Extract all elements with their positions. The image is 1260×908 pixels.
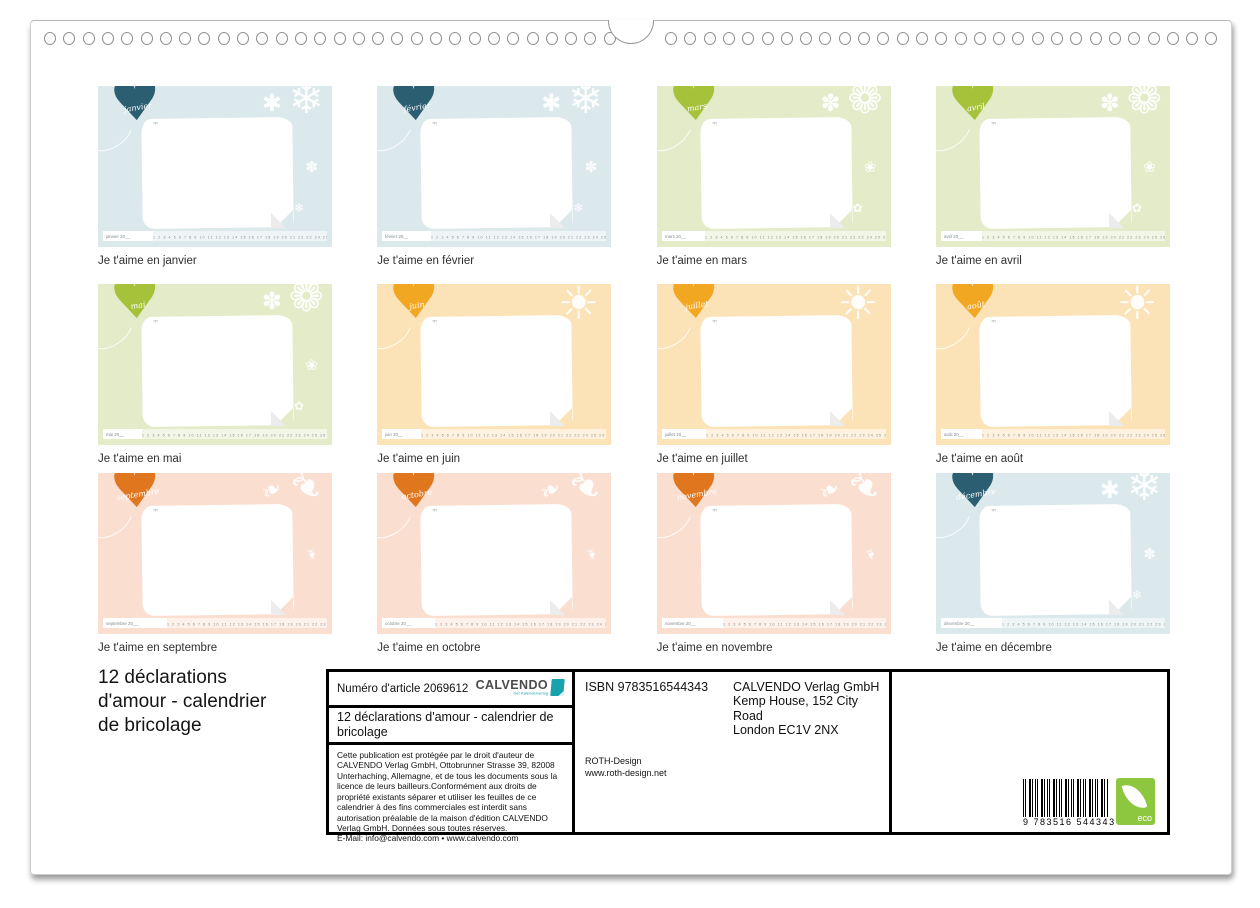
month-caption: Je t'aime en septembre bbox=[98, 642, 332, 654]
month-caption: Je t'aime en avril bbox=[936, 255, 1170, 267]
binding-ring bbox=[102, 32, 114, 45]
quote-icon: ”” bbox=[712, 121, 715, 132]
copyright-block: Cette publication est protégée par le dr… bbox=[329, 745, 572, 849]
calendar-back-page: ❄ ✱ ✽ ❄ ♥ janvier ”” janvier 20__ 1 2 3 … bbox=[30, 20, 1232, 875]
binding-ring bbox=[1012, 32, 1024, 45]
quote-icon: ”” bbox=[991, 319, 994, 330]
binding-ring bbox=[449, 32, 461, 45]
snowflake-icon: ❄ bbox=[1132, 589, 1142, 601]
date-strip: mars 20__ 1 2 3 4 5 6 7 8 9 10 11 12 13 … bbox=[662, 231, 886, 241]
binding-ring bbox=[800, 32, 812, 45]
brand-tagline: Der Kalenderverlag bbox=[514, 691, 548, 696]
flower-icon: ✿ bbox=[294, 400, 304, 412]
leaf-icon: ❧ bbox=[816, 476, 845, 507]
binding-ring bbox=[565, 32, 577, 45]
binding-ring bbox=[372, 32, 384, 45]
info-table-middle-column: ISBN 9783516544343 CALVENDO Verlag GmbH … bbox=[575, 672, 892, 832]
snowflake-icon: ❄ bbox=[1127, 473, 1162, 507]
date-strip-days: 1 2 3 4 5 6 7 8 9 10 11 12 13 14 15 16 1… bbox=[142, 429, 327, 439]
snowflake-icon: ✽ bbox=[305, 160, 318, 175]
bubble-fold bbox=[271, 411, 286, 426]
date-strip: décembre 20__ 1 2 3 4 5 6 7 8 9 10 11 12… bbox=[941, 618, 1165, 628]
publisher-line: London EC1V 2NX bbox=[733, 723, 889, 737]
binding-ring bbox=[179, 32, 191, 45]
month-preview: ❄ ✱ ✽ ❄ ♥ février ”” février 20__ 1 2 3 … bbox=[377, 86, 611, 247]
month-card: ❁ ✽ ❀ ✿ ♥ mars ”” mars 20__ 1 2 3 4 5 6 … bbox=[657, 86, 891, 267]
binding-ring bbox=[527, 32, 539, 45]
binding-ring bbox=[877, 32, 889, 45]
designer-line: ROTH-Design bbox=[585, 756, 667, 768]
product-title: 12 déclarations d'amour - calendrier de … bbox=[329, 708, 572, 745]
bubble-fold bbox=[550, 411, 565, 426]
calvendo-logo-text: CALVENDO Der Kalenderverlag bbox=[476, 678, 548, 700]
info-table-left-column: Numéro d'article 2069612 CALVENDO Der Ka… bbox=[329, 672, 575, 832]
flower-icon: ✽ bbox=[820, 92, 840, 116]
month-caption: Je t'aime en novembre bbox=[657, 642, 891, 654]
month-card: ❧ ❧ ❧ ♥ novembre ”” novembre 20__ 1 2 3 … bbox=[657, 473, 891, 654]
month-preview: ☀ ♥ juin ”” juin 20__ 1 2 3 4 5 6 7 8 9 … bbox=[377, 284, 611, 445]
flower-icon: ✽ bbox=[1100, 92, 1120, 116]
bubble-fold bbox=[830, 600, 845, 615]
month-caption: Je t'aime en octobre bbox=[377, 642, 611, 654]
binding-ring bbox=[469, 32, 481, 45]
month-card: ☀ ♥ juin ”” juin 20__ 1 2 3 4 5 6 7 8 9 … bbox=[377, 284, 611, 465]
month-card: ❄ ✱ ✽ ❄ ♥ décembre ”” décembre 20__ 1 2 … bbox=[936, 473, 1170, 654]
binding-ring bbox=[83, 32, 95, 45]
bubble-fold bbox=[1109, 411, 1124, 426]
calendar-title-line: de bricolage bbox=[98, 714, 266, 738]
info-table-right-column: 9 783516 544343 eco bbox=[892, 672, 1167, 832]
barcode: 9 783516 544343 bbox=[1023, 779, 1109, 827]
binding-ring bbox=[391, 32, 403, 45]
date-strip: février 20__ 1 2 3 4 5 6 7 8 9 10 11 12 … bbox=[382, 231, 606, 241]
binding-ring bbox=[897, 32, 909, 45]
copyright-text: Cette publication est protégée par le dr… bbox=[337, 750, 557, 833]
bubble-fold bbox=[271, 600, 286, 615]
binding-ring bbox=[430, 32, 442, 45]
date-strip: janvier 20__ 1 2 3 4 5 6 7 8 9 10 11 12 … bbox=[103, 231, 327, 241]
eco-leaf-icon bbox=[1122, 781, 1148, 812]
date-strip: novembre 20__ 1 2 3 4 5 6 7 8 9 10 11 12… bbox=[662, 618, 886, 628]
month-preview: ❧ ❧ ❧ ♥ octobre ”” octobre 20__ 1 2 3 4 … bbox=[377, 473, 611, 634]
binding-ring bbox=[218, 32, 230, 45]
binding-ring bbox=[781, 32, 793, 45]
month-caption: Je t'aime en juin bbox=[377, 453, 611, 465]
date-strip-label: juillet 20__ bbox=[662, 429, 706, 439]
article-number: Numéro d'article 2069612 bbox=[337, 683, 468, 695]
date-strip-label: décembre 20__ bbox=[941, 618, 1003, 628]
binding-ring bbox=[1032, 32, 1044, 45]
date-strip-label: mars 20__ bbox=[662, 231, 706, 241]
flower-icon: ✿ bbox=[1132, 202, 1142, 214]
date-strip: octobre 20__ 1 2 3 4 5 6 7 8 9 10 11 12 … bbox=[382, 618, 606, 628]
bubble-fold bbox=[1109, 213, 1124, 228]
article-row: Numéro d'article 2069612 CALVENDO Der Ka… bbox=[329, 672, 572, 708]
month-card: ❁ ✽ ❀ ✿ ♥ mai ”” mai 20__ 1 2 3 4 5 6 7 … bbox=[98, 284, 332, 465]
quote-icon: ”” bbox=[712, 508, 715, 519]
date-strip-label: juin 20__ bbox=[382, 429, 420, 439]
leaf-icon: ❧ bbox=[581, 545, 600, 563]
date-strip-days: 1 2 3 4 5 6 7 8 9 10 11 12 13 14 15 16 1… bbox=[982, 231, 1165, 241]
date-strip-label: février 20__ bbox=[382, 231, 430, 241]
binding-ring bbox=[507, 32, 519, 45]
bubble-fold bbox=[830, 213, 845, 228]
month-preview: ❧ ❧ ❧ ♥ novembre ”” novembre 20__ 1 2 3 … bbox=[657, 473, 891, 634]
month-caption: Je t'aime en décembre bbox=[936, 642, 1170, 654]
date-strip-label: août 20__ bbox=[941, 429, 983, 439]
month-caption: Je t'aime en mai bbox=[98, 453, 332, 465]
month-card: ❄ ✱ ✽ ❄ ♥ février ”” février 20__ 1 2 3 … bbox=[377, 86, 611, 267]
month-card: ☀ ♥ juillet ”” juillet 20__ 1 2 3 4 5 6 … bbox=[657, 284, 891, 465]
binding-ring bbox=[546, 32, 558, 45]
binding-ring bbox=[704, 32, 716, 45]
flower-icon: ❁ bbox=[1127, 86, 1162, 120]
binding-ring bbox=[237, 32, 249, 45]
calvendo-logo: CALVENDO Der Kalenderverlag bbox=[476, 678, 564, 700]
bubble-fold bbox=[1109, 600, 1124, 615]
calendar-title-line: d'amour - calendrier bbox=[98, 690, 266, 714]
binding-ring bbox=[1051, 32, 1063, 45]
barcode-number: 9 783516 544343 bbox=[1023, 817, 1109, 827]
bubble-fold bbox=[830, 411, 845, 426]
date-strip-days: 1 2 3 4 5 6 7 8 9 10 11 12 13 14 15 16 1… bbox=[431, 231, 607, 241]
date-strip-days: 1 2 3 4 5 6 7 8 9 10 11 12 13 14 15 16 1… bbox=[167, 618, 327, 628]
date-strip-days: 1 2 3 4 5 6 7 8 9 10 11 12 13 14 15 16 1… bbox=[723, 618, 885, 628]
date-strip: juillet 20__ 1 2 3 4 5 6 7 8 9 10 11 12 … bbox=[662, 429, 886, 439]
snowflake-icon: ✽ bbox=[585, 160, 598, 175]
quote-icon: ”” bbox=[153, 508, 156, 519]
month-card: ☀ ♥ août ”” août 20__ 1 2 3 4 5 6 7 8 9 … bbox=[936, 284, 1170, 465]
snowflake-icon: ✽ bbox=[1143, 547, 1156, 562]
binding-ring bbox=[198, 32, 210, 45]
binding-ring bbox=[353, 32, 365, 45]
eco-label: eco bbox=[1137, 813, 1152, 823]
snowflake-icon: ✱ bbox=[541, 92, 561, 116]
binding-ring bbox=[584, 32, 596, 45]
binding-ring bbox=[488, 32, 500, 45]
leaf-icon: ❧ bbox=[861, 545, 880, 563]
snowflake-icon: ✱ bbox=[1100, 479, 1120, 503]
month-preview: ☀ ♥ juillet ”” juillet 20__ 1 2 3 4 5 6 … bbox=[657, 284, 891, 445]
flower-icon: ❀ bbox=[1143, 160, 1156, 175]
binding-ring bbox=[63, 32, 75, 45]
flower-icon: ❁ bbox=[847, 86, 882, 120]
date-strip-label: septembre 20__ bbox=[103, 618, 167, 628]
binding-ring bbox=[916, 32, 928, 45]
snowflake-icon: ✱ bbox=[262, 92, 282, 116]
binding-ring bbox=[411, 32, 423, 45]
binding-ring bbox=[44, 32, 56, 45]
binding-ring bbox=[1128, 32, 1140, 45]
brand-flag-icon bbox=[550, 679, 564, 696]
flower-icon: ✿ bbox=[853, 202, 863, 214]
quote-icon: ”” bbox=[991, 121, 994, 132]
date-strip-label: janvier 20__ bbox=[103, 231, 153, 241]
bubble-fold bbox=[550, 600, 565, 615]
binding-ring bbox=[819, 32, 831, 45]
publisher-address: CALVENDO Verlag GmbH Kemp House, 152 Cit… bbox=[733, 680, 889, 737]
binding-ring bbox=[955, 32, 967, 45]
date-strip: mai 20__ 1 2 3 4 5 6 7 8 9 10 11 12 13 1… bbox=[103, 429, 327, 439]
leaf-icon: ❧ bbox=[302, 545, 321, 563]
month-card: ❧ ❧ ❧ ♥ septembre ”” septembre 20__ 1 2 … bbox=[98, 473, 332, 654]
designer-line: www.roth-design.net bbox=[585, 768, 667, 780]
binding-ring bbox=[762, 32, 774, 45]
bubble-fold bbox=[550, 213, 565, 228]
binding-ring bbox=[1070, 32, 1082, 45]
binding-ring bbox=[256, 32, 268, 45]
month-caption: Je t'aime en juillet bbox=[657, 453, 891, 465]
bubble-fold bbox=[271, 213, 286, 228]
leaf-icon: ❧ bbox=[537, 476, 566, 507]
snowflake-icon: ❄ bbox=[568, 86, 603, 120]
quote-icon: ”” bbox=[433, 121, 436, 132]
binding-ring bbox=[935, 32, 947, 45]
binding-ring bbox=[314, 32, 326, 45]
date-strip: septembre 20__ 1 2 3 4 5 6 7 8 9 10 11 1… bbox=[103, 618, 327, 628]
flower-icon: ✽ bbox=[262, 290, 282, 314]
barcode-bars bbox=[1023, 779, 1109, 817]
binding-ring bbox=[1186, 32, 1198, 45]
leaf-icon: ❧ bbox=[257, 476, 286, 507]
month-card: ❄ ✱ ✽ ❄ ♥ janvier ”” janvier 20__ 1 2 3 … bbox=[98, 86, 332, 267]
date-strip: juin 20__ 1 2 3 4 5 6 7 8 9 10 11 12 13 … bbox=[382, 429, 606, 439]
month-caption: Je t'aime en août bbox=[936, 453, 1170, 465]
month-preview: ❄ ✱ ✽ ❄ ♥ décembre ”” décembre 20__ 1 2 … bbox=[936, 473, 1170, 634]
binding-ring bbox=[839, 32, 851, 45]
date-strip-days: 1 2 3 4 5 6 7 8 9 10 11 12 13 14 15 16 1… bbox=[153, 231, 327, 241]
flower-icon: ❀ bbox=[864, 160, 877, 175]
binding-ring bbox=[1148, 32, 1160, 45]
flower-icon: ❀ bbox=[305, 358, 318, 373]
binding-ring bbox=[121, 32, 133, 45]
eco-logo: eco bbox=[1116, 778, 1155, 825]
month-preview: ❁ ✽ ❀ ✿ ♥ mai ”” mai 20__ 1 2 3 4 5 6 7 … bbox=[98, 284, 332, 445]
date-strip-days: 1 2 3 4 5 6 7 8 9 10 11 12 13 14 15 16 1… bbox=[706, 429, 886, 439]
binding-ring bbox=[1090, 32, 1102, 45]
brand-name: CALVENDO bbox=[476, 678, 548, 692]
quote-icon: ”” bbox=[712, 319, 715, 330]
month-caption: Je t'aime en février bbox=[377, 255, 611, 267]
binding-ring bbox=[993, 32, 1005, 45]
date-strip-label: octobre 20__ bbox=[382, 618, 435, 628]
binding-ring bbox=[723, 32, 735, 45]
month-preview: ❁ ✽ ❀ ✿ ♥ avril ”” avril 20__ 1 2 3 4 5 … bbox=[936, 86, 1170, 247]
month-preview: ❧ ❧ ❧ ♥ septembre ”” septembre 20__ 1 2 … bbox=[98, 473, 332, 634]
binding-ring bbox=[742, 32, 754, 45]
date-strip-label: mai 20__ bbox=[103, 429, 142, 439]
date-strip: avril 20__ 1 2 3 4 5 6 7 8 9 10 11 12 13… bbox=[941, 231, 1165, 241]
binding-ring bbox=[160, 32, 172, 45]
month-card: ❧ ❧ ❧ ♥ octobre ”” octobre 20__ 1 2 3 4 … bbox=[377, 473, 611, 654]
month-preview: ❄ ✱ ✽ ❄ ♥ janvier ”” janvier 20__ 1 2 3 … bbox=[98, 86, 332, 247]
month-preview: ☀ ♥ août ”” août 20__ 1 2 3 4 5 6 7 8 9 … bbox=[936, 284, 1170, 445]
binding-ring bbox=[276, 32, 288, 45]
quote-icon: ”” bbox=[153, 121, 156, 132]
date-strip-days: 1 2 3 4 5 6 7 8 9 10 11 12 13 14 15 16 1… bbox=[982, 429, 1164, 439]
publisher-line: Kemp House, 152 City Road bbox=[733, 694, 889, 723]
binding-ring bbox=[1167, 32, 1179, 45]
publisher-line: CALVENDO Verlag GmbH bbox=[733, 680, 889, 694]
date-strip-label: novembre 20__ bbox=[662, 618, 724, 628]
quote-icon: ”” bbox=[433, 508, 436, 519]
binding-ring bbox=[684, 32, 696, 45]
date-strip: août 20__ 1 2 3 4 5 6 7 8 9 10 11 12 13 … bbox=[941, 429, 1165, 439]
calendar-title: 12 déclarations d'amour - calendrier de … bbox=[98, 666, 266, 738]
date-strip-days: 1 2 3 4 5 6 7 8 9 10 11 12 13 14 15 16 1… bbox=[421, 429, 607, 439]
date-strip-label: avril 20__ bbox=[941, 231, 982, 241]
binding-ring bbox=[295, 32, 307, 45]
calendar-title-line: 12 déclarations bbox=[98, 666, 266, 690]
quote-icon: ”” bbox=[433, 319, 436, 330]
date-strip-days: 1 2 3 4 5 6 7 8 9 10 11 12 13 14 15 16 1… bbox=[1002, 618, 1164, 628]
binding-ring bbox=[1205, 32, 1217, 45]
date-strip-days: 1 2 3 4 5 6 7 8 9 10 11 12 13 14 15 16 1… bbox=[435, 618, 606, 628]
binding-ring bbox=[334, 32, 346, 45]
month-caption: Je t'aime en janvier bbox=[98, 255, 332, 267]
flower-icon: ❁ bbox=[289, 284, 324, 318]
binding-ring bbox=[141, 32, 153, 45]
binding-ring bbox=[1109, 32, 1121, 45]
binding-ring bbox=[974, 32, 986, 45]
month-caption: Je t'aime en mars bbox=[657, 255, 891, 267]
month-preview: ❁ ✽ ❀ ✿ ♥ mars ”” mars 20__ 1 2 3 4 5 6 … bbox=[657, 86, 891, 247]
designer-credit: ROTH-Design www.roth-design.net bbox=[585, 756, 667, 779]
snowflake-icon: ❄ bbox=[573, 202, 583, 214]
snowflake-icon: ❄ bbox=[289, 86, 324, 120]
binding-ring bbox=[665, 32, 677, 45]
month-card: ❁ ✽ ❀ ✿ ♥ avril ”” avril 20__ 1 2 3 4 5 … bbox=[936, 86, 1170, 267]
quote-icon: ”” bbox=[153, 319, 156, 330]
email-line: E-Mail: info@calvendo.com • www.calvendo… bbox=[337, 833, 518, 843]
binding-ring bbox=[858, 32, 870, 45]
quote-icon: ”” bbox=[991, 508, 994, 519]
date-strip-days: 1 2 3 4 5 6 7 8 9 10 11 12 13 14 15 16 1… bbox=[705, 231, 885, 241]
info-table: Numéro d'article 2069612 CALVENDO Der Ka… bbox=[326, 669, 1170, 835]
snowflake-icon: ❄ bbox=[294, 202, 304, 214]
